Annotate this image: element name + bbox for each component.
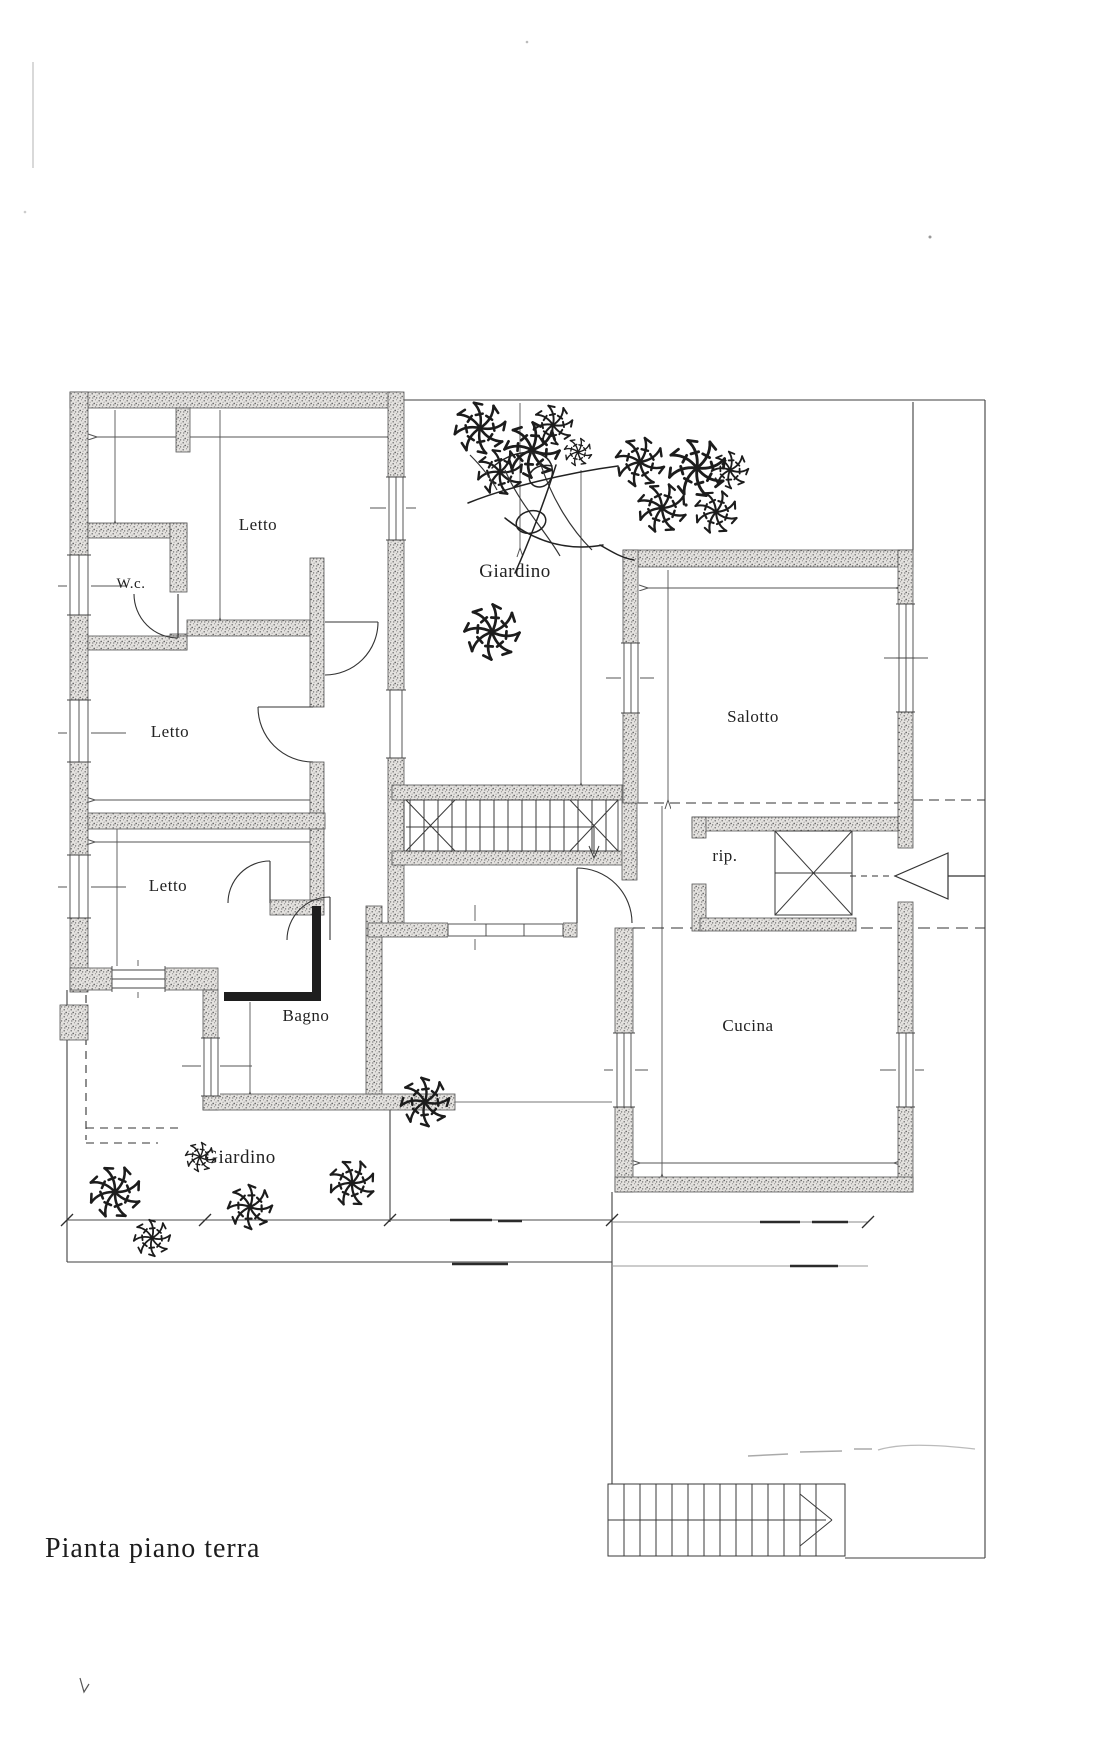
window: [621, 643, 640, 713]
shrub-icon: [453, 593, 531, 671]
door-arc: [258, 707, 313, 762]
room-label-cucina: Cucina: [722, 1016, 773, 1035]
room-label-giardino-top: Giardino: [479, 561, 551, 582]
window: [386, 477, 406, 540]
shrub-icon: [393, 1070, 457, 1134]
scanned-floor-plan-page: Letto W.c. Giardino Salotto Letto rip. L…: [0, 0, 1108, 1753]
shrub-icon: [219, 1176, 281, 1238]
window: [67, 855, 91, 918]
terrace-dashed-outline: [86, 995, 182, 1143]
internal-staircase: [404, 800, 618, 858]
room-label-letto-2: Letto: [151, 722, 189, 741]
walls: [60, 392, 913, 1192]
window: [448, 921, 563, 939]
room-label-bagno: Bagno: [283, 1006, 330, 1025]
room-label-giardino-bottom: Giardino: [204, 1147, 276, 1168]
tree-branches: [470, 455, 592, 556]
room-label-letto-3: Letto: [149, 876, 187, 895]
window: [613, 1033, 635, 1107]
room-label-letto-1: Letto: [239, 515, 277, 534]
room-label-rip: rip.: [712, 846, 737, 865]
plan-title: Pianta piano terra: [45, 1533, 260, 1564]
window: [67, 700, 91, 762]
window: [201, 1038, 220, 1096]
photocopy-dark-dashes: [450, 1220, 848, 1266]
site-dimension-line: [61, 1214, 874, 1266]
window: [896, 604, 915, 712]
storage-shelf: [775, 831, 852, 915]
scan-artifacts: [24, 41, 975, 1692]
shrub-icon: [128, 1214, 176, 1262]
window: [112, 966, 165, 992]
room-label-salotto: Salotto: [727, 707, 779, 726]
tree-icon: [615, 428, 755, 543]
external-staircase: [608, 1484, 845, 1556]
entrance-arrow-icon: [895, 853, 985, 899]
floor-plan-canvas: Letto W.c. Giardino Salotto Letto rip. L…: [0, 0, 1108, 1753]
door-arc: [228, 861, 270, 903]
shrub-icon: [325, 1156, 379, 1210]
garden-doorway: [386, 690, 406, 758]
shrub-icon: [564, 438, 592, 466]
window: [896, 1033, 915, 1107]
doors: [134, 594, 632, 940]
window: [67, 555, 91, 615]
bold-walls: [224, 906, 321, 1001]
door-arc: [325, 622, 378, 675]
room-label-wc: W.c.: [117, 576, 146, 592]
door-arc: [134, 594, 178, 638]
shrub-icon: [84, 1161, 145, 1222]
